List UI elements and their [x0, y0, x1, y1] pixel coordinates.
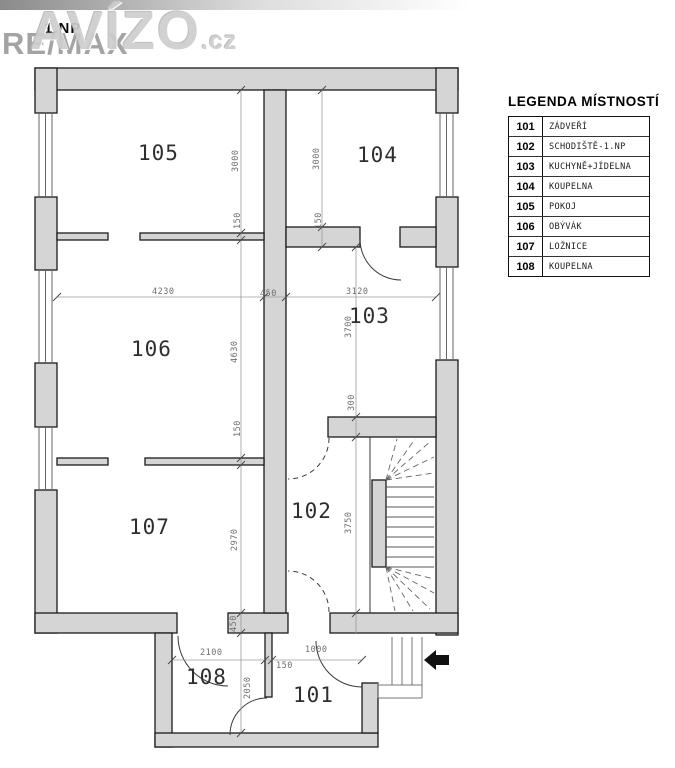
- avizo-watermark-suffix: .cz: [201, 27, 237, 55]
- floorplan-page: 105 104 106 103 107 102 108 101 3000 150…: [0, 0, 675, 768]
- dim-label: 4230: [152, 287, 174, 297]
- dim-label: 1000: [305, 645, 327, 655]
- legend-row: 107 LOŽNICE: [509, 237, 649, 257]
- legend-room-name: POKOJ: [543, 202, 576, 212]
- room-label-105: 105: [138, 141, 179, 165]
- avizo-watermark: AVÍZO.cz: [30, 0, 237, 62]
- dim-label: 3000: [312, 148, 322, 170]
- legend-room-number: 102: [509, 137, 543, 156]
- dim-label: 3700: [344, 316, 354, 338]
- legend: LEGENDA MÍSTNOSTÍ 101 ZÁDVEŘÍ 102 SCHODI…: [508, 94, 654, 277]
- dimension-lines: [57, 90, 436, 733]
- legend-room-name: LOŽNICE: [543, 242, 587, 252]
- avizo-watermark-text: AVÍZO: [30, 1, 201, 61]
- legend-row: 104 KOUPELNA: [509, 177, 649, 197]
- legend-room-number: 101: [509, 117, 543, 136]
- legend-room-name: KOUPELNA: [543, 262, 593, 272]
- legend-row: 108 KOUPELNA: [509, 257, 649, 276]
- room-label-106: 106: [131, 337, 172, 361]
- dim-label: 2100: [200, 648, 222, 658]
- room-label-103: 103: [349, 304, 390, 328]
- dim-label: 300: [347, 394, 357, 411]
- legend-room-name: OBÝVÁK: [543, 222, 582, 232]
- legend-room-name: KUCHYNĚ+JÍDELNA: [543, 162, 631, 172]
- legend-room-name: KOUPELNA: [543, 182, 593, 192]
- dim-label: 3000: [231, 150, 241, 172]
- dim-label: 150: [276, 661, 293, 671]
- entrance-porch: [378, 637, 422, 698]
- legend-room-name: ZÁDVEŘÍ: [543, 122, 587, 132]
- dimension-ticks: [53, 86, 440, 737]
- legend-room-number: 104: [509, 177, 543, 196]
- legend-row: 102 SCHODIŠTĚ-1.NP: [509, 137, 649, 157]
- legend-row: 101 ZÁDVEŘÍ: [509, 117, 649, 137]
- legend-room-name: SCHODIŠTĚ-1.NP: [543, 142, 626, 152]
- dim-label: 4630: [230, 341, 240, 363]
- room-label-104: 104: [357, 143, 398, 167]
- entrance-arrow-icon: [424, 650, 449, 670]
- legend-title: LEGENDA MÍSTNOSTÍ: [508, 94, 654, 109]
- legend-row: 106 OBÝVÁK: [509, 217, 649, 237]
- room-label-101: 101: [293, 683, 334, 707]
- dim-label: 150: [233, 212, 243, 229]
- legend-room-number: 108: [509, 257, 543, 276]
- dim-label: 2050: [243, 677, 253, 699]
- dim-label: 3120: [346, 287, 368, 297]
- legend-room-number: 105: [509, 197, 543, 216]
- dim-label: 3750: [344, 512, 354, 534]
- legend-room-number: 103: [509, 157, 543, 176]
- room-label-107: 107: [129, 515, 170, 539]
- dim-label: 150: [314, 212, 324, 229]
- walls: [35, 68, 458, 747]
- dim-label: 2970: [230, 529, 240, 551]
- dim-label: 450: [260, 289, 277, 299]
- dim-label: 450: [229, 615, 239, 632]
- legend-row: 105 POKOJ: [509, 197, 649, 217]
- dim-label: 150: [233, 420, 243, 437]
- legend-room-number: 107: [509, 237, 543, 256]
- legend-row: 103 KUCHYNĚ+JÍDELNA: [509, 157, 649, 177]
- legend-table: 101 ZÁDVEŘÍ 102 SCHODIŠTĚ-1.NP 103 KUCHY…: [508, 116, 650, 277]
- legend-room-number: 106: [509, 217, 543, 236]
- room-label-102: 102: [291, 499, 332, 523]
- room-label-108: 108: [186, 665, 227, 689]
